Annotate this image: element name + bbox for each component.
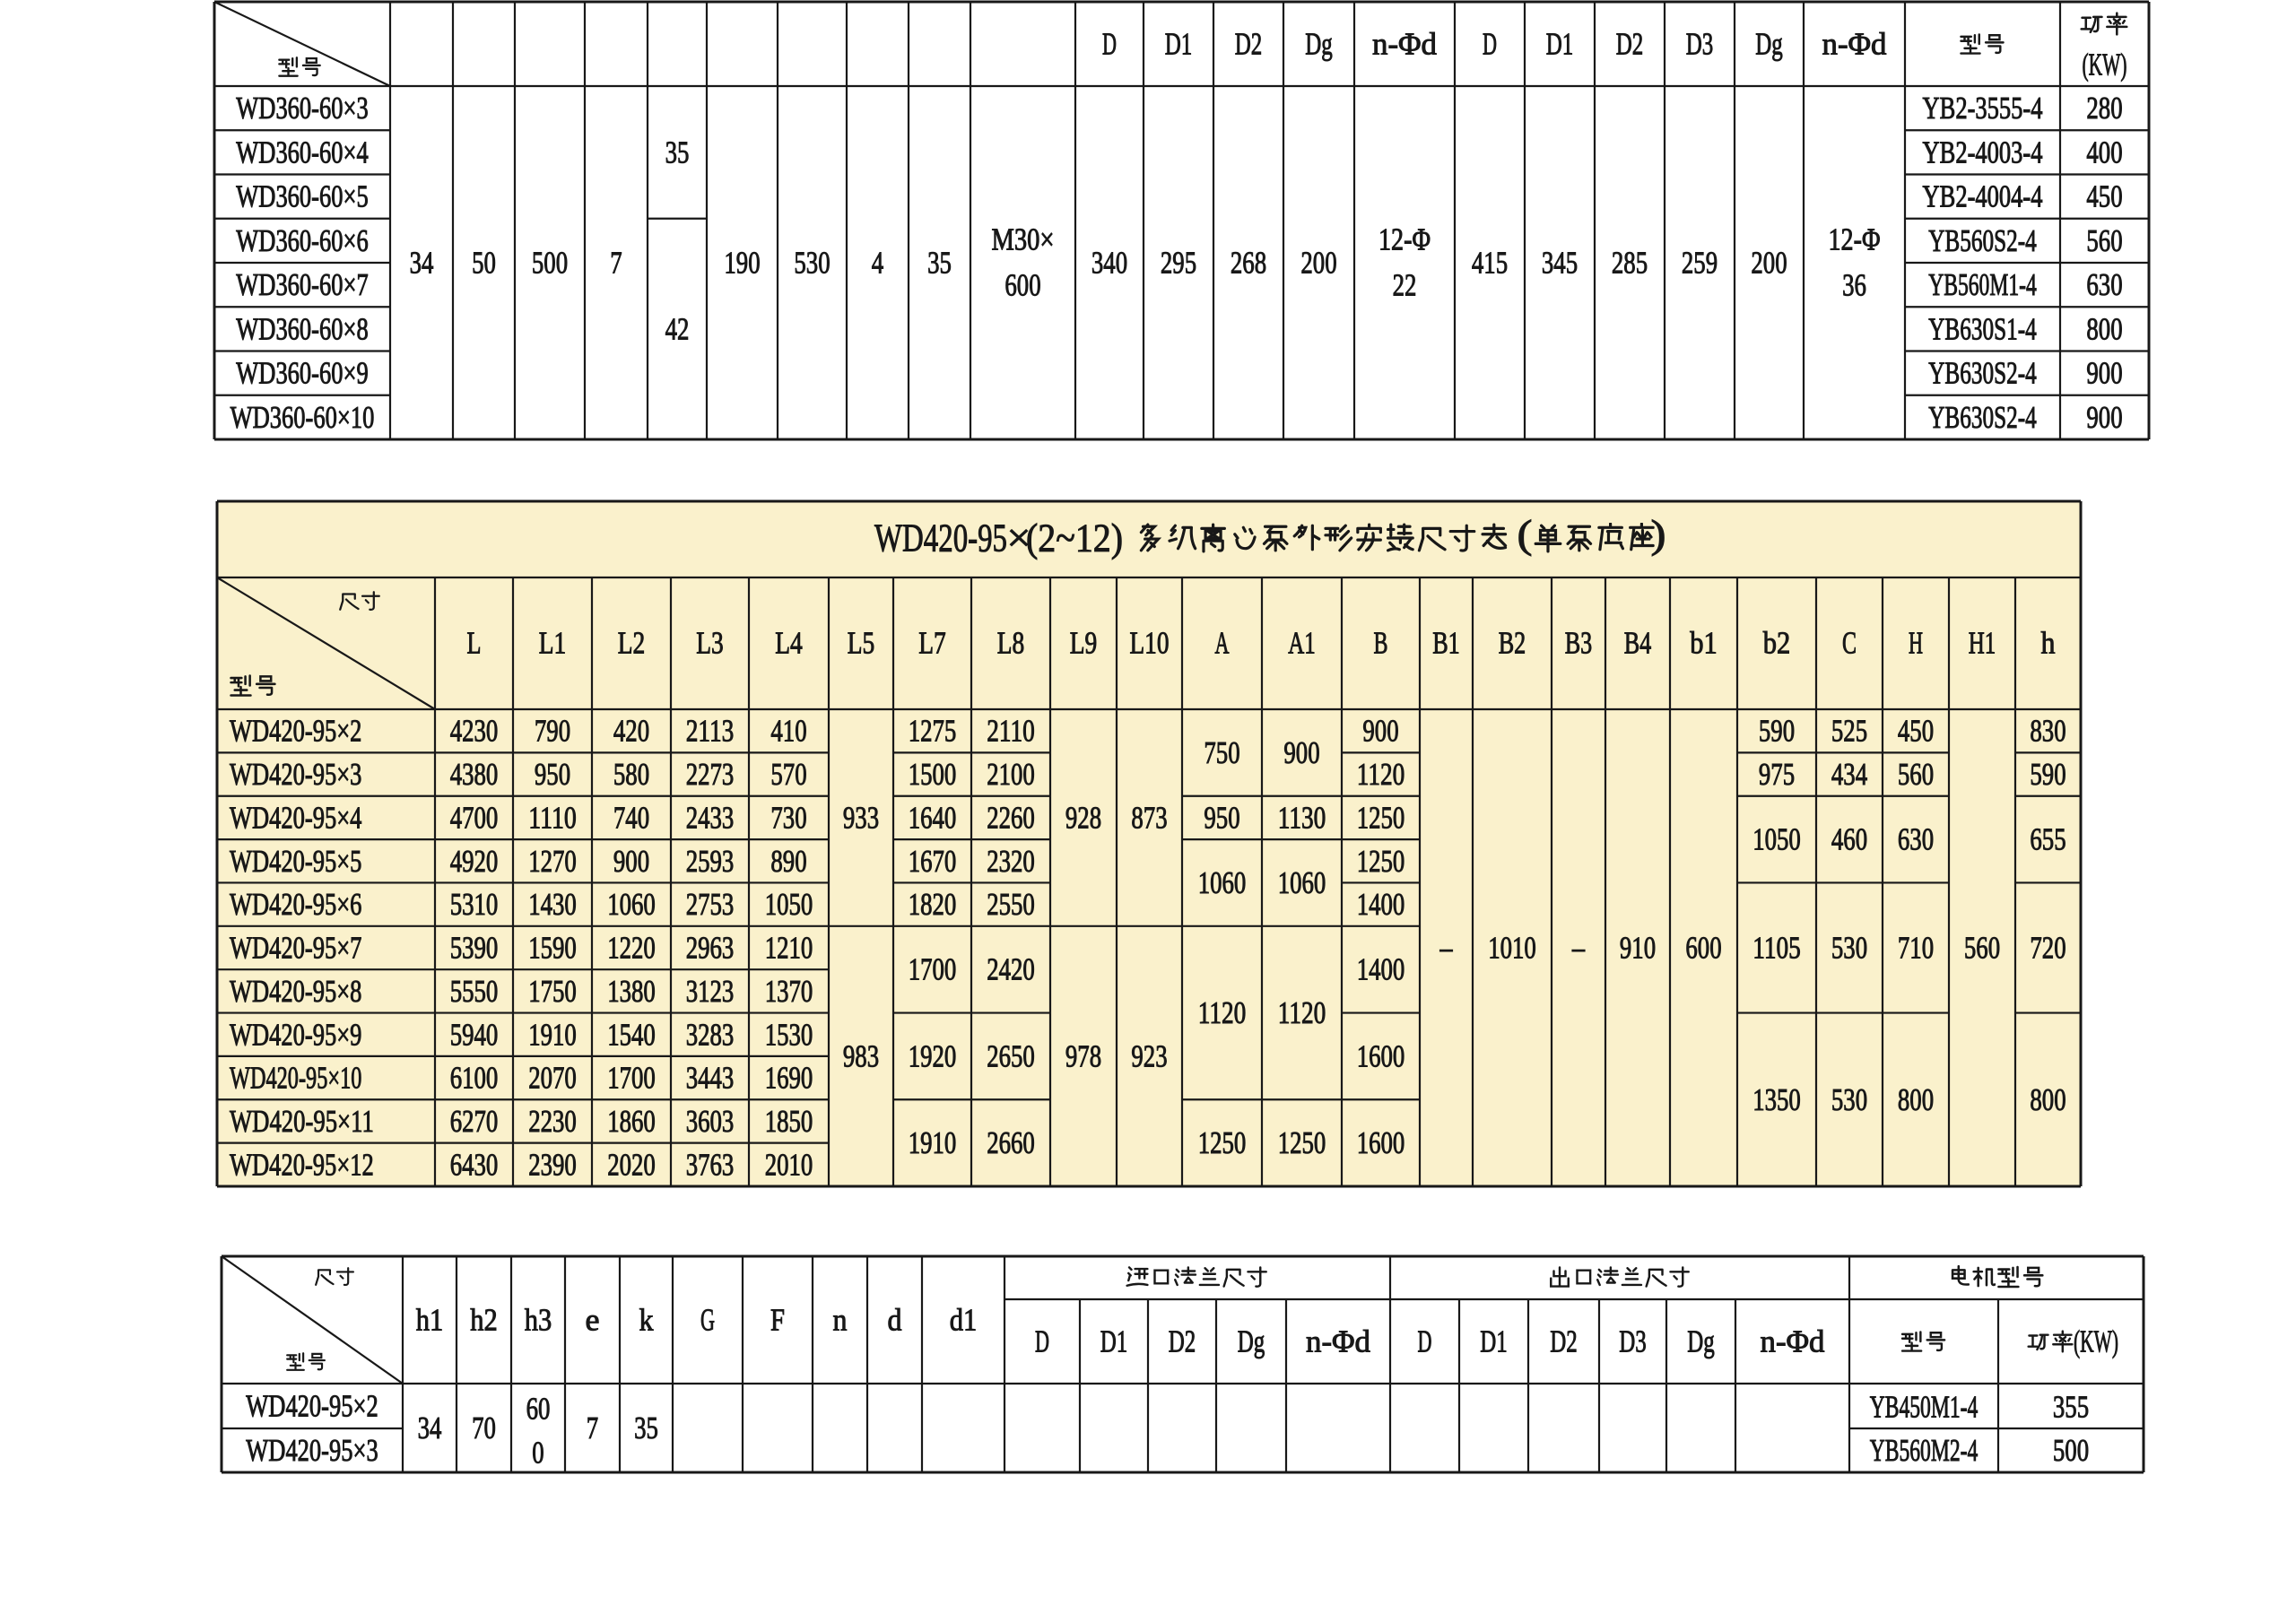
svg-text:1820: 1820	[909, 887, 957, 922]
svg-text:12-Φ: 12-Φ	[1378, 222, 1431, 257]
svg-text:n-Φd: n-Φd	[1372, 27, 1437, 62]
svg-text:WD420-95×2: WD420-95×2	[246, 1389, 378, 1424]
svg-text:2963: 2963	[686, 931, 735, 966]
svg-text:A1: A1	[1288, 626, 1316, 661]
svg-text:1500: 1500	[909, 757, 957, 792]
svg-text:345: 345	[1542, 246, 1578, 281]
svg-text:500: 500	[532, 246, 568, 281]
svg-text:890: 890	[770, 844, 806, 879]
svg-text:580: 580	[613, 757, 649, 792]
svg-text:750: 750	[1204, 735, 1239, 770]
svg-text:35: 35	[634, 1410, 658, 1445]
svg-text:340: 340	[1091, 246, 1127, 281]
svg-text:2010: 2010	[765, 1147, 813, 1182]
svg-text:2320: 2320	[987, 844, 1035, 879]
svg-text:295: 295	[1161, 246, 1196, 281]
svg-text:WD420-95×3: WD420-95×3	[230, 757, 361, 792]
svg-text:1220: 1220	[607, 931, 656, 966]
svg-text:1010: 1010	[1488, 931, 1536, 966]
svg-text:h2: h2	[470, 1303, 498, 1338]
svg-text:L7: L7	[918, 626, 946, 661]
svg-text:60: 60	[526, 1392, 551, 1427]
svg-text:6100: 6100	[450, 1061, 499, 1096]
svg-text:D1: D1	[1165, 27, 1193, 62]
svg-text:2020: 2020	[607, 1147, 656, 1182]
svg-text:WD360-60×3: WD360-60×3	[236, 91, 368, 126]
svg-text:n-Φd: n-Φd	[1822, 27, 1887, 62]
svg-text:740: 740	[613, 800, 649, 835]
svg-text:D3: D3	[1619, 1324, 1647, 1359]
svg-text:D: D	[1102, 27, 1117, 62]
svg-text:F: F	[770, 1303, 785, 1338]
svg-text:4: 4	[872, 246, 883, 281]
svg-text:D: D	[1483, 27, 1497, 62]
svg-text:WD360-60×10: WD360-60×10	[230, 400, 375, 435]
svg-text:900: 900	[1283, 735, 1319, 770]
svg-text:1370: 1370	[765, 974, 813, 1009]
svg-text:35: 35	[665, 135, 690, 169]
svg-text:1700: 1700	[909, 952, 957, 987]
svg-text:730: 730	[770, 800, 806, 835]
svg-text:Dg: Dg	[1238, 1324, 1265, 1359]
svg-text:(KW): (KW)	[2074, 1324, 2118, 1359]
svg-text:B3: B3	[1565, 626, 1593, 661]
svg-text:WD360-60×5: WD360-60×5	[236, 179, 368, 214]
svg-text:975: 975	[1759, 757, 1795, 792]
svg-text:1060: 1060	[607, 887, 656, 922]
svg-text:4230: 4230	[450, 714, 499, 749]
svg-text:2550: 2550	[987, 887, 1035, 922]
svg-text:L2: L2	[618, 626, 646, 661]
svg-text:35: 35	[927, 246, 952, 281]
svg-text:WD420-95: WD420-95	[874, 516, 1007, 560]
svg-text:2390: 2390	[528, 1147, 577, 1182]
svg-text:WD360-60×4: WD360-60×4	[236, 135, 368, 169]
svg-text:B2: B2	[1499, 626, 1526, 661]
svg-text:(: (	[1518, 513, 1533, 557]
svg-text:WD420-95×8: WD420-95×8	[230, 974, 361, 1009]
svg-text:560: 560	[1898, 757, 1934, 792]
svg-text:355: 355	[2053, 1390, 2089, 1425]
svg-text:1380: 1380	[607, 974, 656, 1009]
svg-text:34: 34	[418, 1410, 442, 1445]
svg-text:4920: 4920	[450, 844, 499, 879]
svg-text:600: 600	[1685, 931, 1721, 966]
svg-text:1105: 1105	[1752, 931, 1801, 966]
svg-text:1600: 1600	[1357, 1125, 1405, 1160]
svg-text:–: –	[1439, 931, 1453, 966]
svg-text:Dg: Dg	[1687, 1324, 1715, 1359]
svg-text:YB2-4004-4: YB2-4004-4	[1923, 179, 2043, 214]
svg-text:933: 933	[843, 800, 879, 835]
svg-text:42: 42	[665, 311, 690, 346]
svg-text:6270: 6270	[450, 1104, 499, 1139]
svg-text:YB450M1-4: YB450M1-4	[1870, 1390, 1979, 1425]
svg-text:910: 910	[1620, 931, 1656, 966]
svg-text:–: –	[1571, 931, 1585, 966]
svg-text:1750: 1750	[528, 974, 577, 1009]
svg-text:36: 36	[1842, 268, 1866, 303]
svg-text:2260: 2260	[987, 800, 1035, 835]
svg-text:n: n	[833, 1303, 848, 1338]
svg-text:1120: 1120	[1198, 995, 1247, 1030]
svg-text:A: A	[1215, 626, 1230, 661]
svg-text:630: 630	[1898, 822, 1934, 857]
svg-text:2110: 2110	[987, 714, 1035, 749]
svg-text:530: 530	[794, 246, 830, 281]
svg-text:1540: 1540	[607, 1017, 656, 1052]
svg-text:2273: 2273	[686, 757, 735, 792]
svg-text:D: D	[1418, 1324, 1432, 1359]
svg-text:YB2-3555-4: YB2-3555-4	[1923, 91, 2043, 126]
svg-text:1270: 1270	[528, 844, 577, 879]
svg-text:WD420-95×4: WD420-95×4	[230, 800, 361, 835]
svg-text:1530: 1530	[765, 1017, 813, 1052]
svg-text:e: e	[586, 1303, 600, 1338]
svg-text:D2: D2	[1616, 27, 1644, 62]
svg-text:1050: 1050	[1752, 822, 1801, 857]
svg-text:1250: 1250	[1198, 1125, 1247, 1160]
svg-text:1400: 1400	[1357, 952, 1405, 987]
svg-text:L8: L8	[997, 626, 1025, 661]
svg-text:800: 800	[2086, 311, 2122, 346]
svg-text:(KW): (KW)	[2083, 48, 2127, 82]
svg-text:n-Φd: n-Φd	[1306, 1324, 1370, 1359]
svg-text:YB560M1-4: YB560M1-4	[1928, 267, 2037, 302]
svg-text:434: 434	[1831, 757, 1867, 792]
svg-text:900: 900	[2086, 356, 2122, 391]
svg-text:190: 190	[724, 246, 760, 281]
svg-text:WD420-95×9: WD420-95×9	[230, 1017, 361, 1052]
svg-text:50: 50	[472, 246, 496, 281]
svg-text:1120: 1120	[1357, 757, 1405, 792]
svg-text:5390: 5390	[450, 931, 499, 966]
svg-text:WD420-95×5: WD420-95×5	[230, 844, 361, 879]
svg-text:(2~12): (2~12)	[1026, 516, 1123, 560]
svg-text:YB630S2-4: YB630S2-4	[1928, 356, 2037, 391]
svg-text:450: 450	[1898, 714, 1934, 749]
svg-text:1120: 1120	[1278, 995, 1326, 1030]
svg-text:WD420-95×11: WD420-95×11	[230, 1104, 374, 1139]
svg-text:D2: D2	[1550, 1324, 1578, 1359]
svg-text:B1: B1	[1432, 626, 1460, 661]
svg-text:YB630S1-4: YB630S1-4	[1928, 311, 2037, 346]
svg-text:1920: 1920	[909, 1038, 957, 1073]
svg-text:400: 400	[2086, 135, 2122, 169]
svg-text:1700: 1700	[607, 1061, 656, 1096]
svg-text:): )	[1651, 513, 1666, 557]
svg-text:530: 530	[1831, 1082, 1867, 1117]
svg-text:1110: 1110	[528, 800, 577, 835]
svg-text:1275: 1275	[909, 714, 957, 749]
svg-text:22: 22	[1393, 268, 1417, 303]
svg-text:Dg: Dg	[1755, 27, 1783, 62]
svg-text:259: 259	[1682, 246, 1718, 281]
svg-text:h1: h1	[416, 1303, 444, 1338]
svg-text:950: 950	[535, 757, 570, 792]
svg-text:710: 710	[1898, 931, 1934, 966]
svg-text:2433: 2433	[686, 800, 735, 835]
svg-text:D2: D2	[1235, 27, 1263, 62]
svg-text:460: 460	[1831, 822, 1867, 857]
svg-text:H: H	[1909, 626, 1923, 661]
svg-text:M30×: M30×	[992, 222, 1055, 257]
svg-text:285: 285	[1612, 246, 1648, 281]
svg-text:200: 200	[1300, 246, 1336, 281]
svg-text:1690: 1690	[765, 1061, 813, 1096]
svg-text:280: 280	[2086, 91, 2122, 126]
svg-text:873: 873	[1131, 800, 1167, 835]
svg-text:1850: 1850	[765, 1104, 813, 1139]
svg-text:3603: 3603	[686, 1104, 735, 1139]
svg-text:D1: D1	[1546, 27, 1574, 62]
svg-text:950: 950	[1204, 800, 1239, 835]
svg-text:7: 7	[610, 246, 622, 281]
svg-text:1250: 1250	[1278, 1125, 1326, 1160]
svg-text:D2: D2	[1169, 1324, 1196, 1359]
svg-text:410: 410	[770, 714, 806, 749]
svg-text:983: 983	[843, 1038, 879, 1073]
svg-text:1430: 1430	[528, 887, 577, 922]
svg-text:H1: H1	[1969, 626, 1996, 661]
svg-text:2420: 2420	[987, 952, 1035, 987]
svg-text:630: 630	[2086, 267, 2122, 302]
svg-text:2650: 2650	[987, 1038, 1035, 1073]
svg-text:D: D	[1035, 1324, 1049, 1359]
svg-text:200: 200	[1751, 246, 1787, 281]
svg-text:12-Φ: 12-Φ	[1829, 222, 1881, 257]
svg-text:G: G	[700, 1303, 715, 1338]
svg-text:b2: b2	[1763, 626, 1791, 661]
svg-text:978: 978	[1065, 1038, 1101, 1073]
svg-text:5310: 5310	[450, 887, 499, 922]
svg-text:d1: d1	[950, 1303, 978, 1338]
svg-text:D1: D1	[1480, 1324, 1508, 1359]
svg-text:0: 0	[532, 1436, 544, 1471]
svg-text:WD360-60×7: WD360-60×7	[236, 267, 368, 302]
svg-text:4700: 4700	[450, 800, 499, 835]
svg-text:WD360-60×9: WD360-60×9	[236, 356, 368, 391]
svg-text:923: 923	[1131, 1038, 1167, 1073]
svg-text:YB2-4003-4: YB2-4003-4	[1923, 135, 2043, 169]
svg-text:800: 800	[1898, 1082, 1934, 1117]
svg-text:L1: L1	[539, 626, 567, 661]
svg-text:900: 900	[613, 844, 649, 879]
svg-text:5940: 5940	[450, 1017, 499, 1052]
svg-text:1590: 1590	[528, 931, 577, 966]
svg-text:C: C	[1842, 626, 1857, 661]
svg-text:655: 655	[2030, 822, 2066, 857]
svg-text:590: 590	[2030, 757, 2066, 792]
svg-text:525: 525	[1831, 714, 1867, 749]
svg-text:WD420-95×3: WD420-95×3	[246, 1433, 378, 1468]
svg-text:4380: 4380	[450, 757, 499, 792]
svg-text:1210: 1210	[765, 931, 813, 966]
svg-text:2753: 2753	[686, 887, 735, 922]
svg-text:WD360-60×6: WD360-60×6	[236, 223, 368, 258]
svg-text:D3: D3	[1686, 27, 1714, 62]
svg-text:900: 900	[2086, 400, 2122, 435]
svg-text:B: B	[1374, 626, 1388, 661]
svg-text:3123: 3123	[686, 974, 735, 1009]
svg-text:900: 900	[1362, 714, 1398, 749]
svg-text:420: 420	[613, 714, 649, 749]
svg-text:5550: 5550	[450, 974, 499, 1009]
svg-text:1060: 1060	[1198, 865, 1247, 900]
svg-text:2230: 2230	[528, 1104, 577, 1139]
svg-text:1130: 1130	[1278, 800, 1326, 835]
svg-text:1400: 1400	[1357, 887, 1405, 922]
svg-text:790: 790	[535, 714, 570, 749]
svg-text:1050: 1050	[765, 887, 813, 922]
svg-text:3283: 3283	[686, 1017, 735, 1052]
svg-text:L10: L10	[1130, 626, 1170, 661]
svg-text:L: L	[467, 626, 482, 661]
svg-text:L9: L9	[1070, 626, 1098, 661]
svg-text:1350: 1350	[1752, 1082, 1801, 1117]
svg-text:d: d	[888, 1303, 902, 1338]
svg-text:YB630S2-4: YB630S2-4	[1928, 400, 2037, 435]
svg-text:1910: 1910	[909, 1125, 957, 1160]
svg-text:YB560S2-4: YB560S2-4	[1928, 223, 2037, 258]
svg-text:2660: 2660	[987, 1125, 1035, 1160]
svg-text:B4: B4	[1624, 626, 1652, 661]
svg-text:600: 600	[1004, 268, 1040, 303]
svg-text:590: 590	[1759, 714, 1795, 749]
svg-text:WD420-95×12: WD420-95×12	[230, 1147, 374, 1182]
svg-text:1250: 1250	[1357, 844, 1405, 879]
svg-text:n-Φd: n-Φd	[1761, 1324, 1825, 1359]
svg-text:WD360-60×8: WD360-60×8	[236, 311, 368, 346]
svg-text:570: 570	[770, 757, 806, 792]
svg-text:1250: 1250	[1357, 800, 1405, 835]
svg-text:k: k	[639, 1303, 654, 1338]
svg-text:2070: 2070	[528, 1061, 577, 1096]
svg-text:2100: 2100	[987, 757, 1035, 792]
svg-text:34: 34	[410, 246, 434, 281]
svg-text:3763: 3763	[686, 1147, 735, 1182]
svg-text:560: 560	[2086, 223, 2122, 258]
svg-text:L3: L3	[696, 626, 724, 661]
svg-text:1640: 1640	[909, 800, 957, 835]
svg-text:WD420-95×2: WD420-95×2	[230, 714, 361, 749]
svg-text:Dg: Dg	[1305, 27, 1333, 62]
svg-text:450: 450	[2086, 179, 2122, 214]
svg-text:830: 830	[2030, 714, 2066, 749]
svg-text:7: 7	[587, 1410, 598, 1445]
svg-text:WD420-95×10: WD420-95×10	[230, 1061, 361, 1096]
svg-text:6430: 6430	[450, 1147, 499, 1182]
svg-text:530: 530	[1831, 931, 1867, 966]
svg-text:800: 800	[2030, 1082, 2066, 1117]
svg-text:70: 70	[472, 1410, 496, 1445]
svg-text:2593: 2593	[686, 844, 735, 879]
svg-text:268: 268	[1231, 246, 1266, 281]
svg-text:928: 928	[1065, 800, 1101, 835]
svg-text:YB560M2-4: YB560M2-4	[1870, 1433, 1979, 1468]
svg-text:D1: D1	[1100, 1324, 1128, 1359]
svg-text:1910: 1910	[528, 1017, 577, 1052]
svg-text:WD420-95×7: WD420-95×7	[230, 931, 361, 966]
svg-text:1060: 1060	[1278, 865, 1326, 900]
svg-text:720: 720	[2030, 931, 2066, 966]
svg-text:560: 560	[1964, 931, 2000, 966]
svg-text:b1: b1	[1690, 626, 1718, 661]
svg-text:L4: L4	[775, 626, 803, 661]
svg-text:1860: 1860	[607, 1104, 656, 1139]
svg-text:3443: 3443	[686, 1061, 735, 1096]
svg-text:L5: L5	[848, 626, 875, 661]
svg-text:1600: 1600	[1357, 1038, 1405, 1073]
svg-text:500: 500	[2053, 1433, 2089, 1468]
svg-text:1670: 1670	[909, 844, 957, 879]
svg-text:h: h	[2041, 626, 2056, 661]
svg-text:WD420-95×6: WD420-95×6	[230, 887, 361, 922]
svg-text:415: 415	[1472, 246, 1508, 281]
svg-text:h3: h3	[525, 1303, 552, 1338]
svg-text:2113: 2113	[686, 714, 735, 749]
